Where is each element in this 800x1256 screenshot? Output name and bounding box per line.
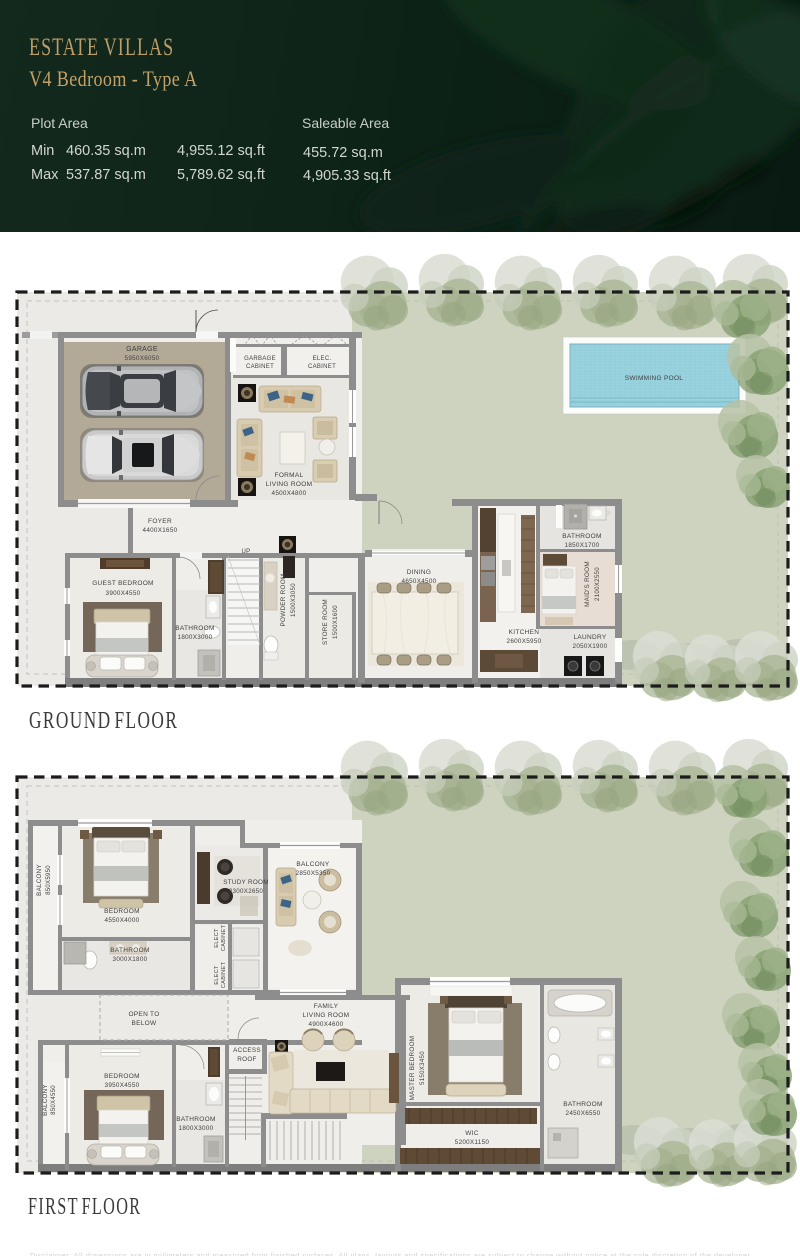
svg-text:1800X3000: 1800X3000 (179, 1125, 214, 1132)
svg-text:1500X1600: 1500X1600 (332, 605, 339, 639)
svg-text:5150X3450: 5150X3450 (419, 1051, 426, 1085)
svg-text:FORMAL: FORMAL (275, 472, 304, 479)
svg-text:POWDER ROOM: POWDER ROOM (280, 574, 287, 627)
svg-text:ELECT: ELECT (214, 928, 220, 948)
svg-text:BEDROOM: BEDROOM (104, 908, 140, 915)
svg-text:5950X6050: 5950X6050 (125, 355, 160, 362)
svg-text:ACCESS: ACCESS (233, 1047, 261, 1054)
svg-text:OPEN TO: OPEN TO (128, 1011, 159, 1018)
svg-text:BEDROOM: BEDROOM (104, 1073, 140, 1080)
svg-text:WIC: WIC (465, 1130, 479, 1137)
svg-text:BALCONY: BALCONY (296, 861, 330, 868)
svg-text:4550X4000: 4550X4000 (105, 917, 140, 924)
svg-text:BATHROOM: BATHROOM (110, 947, 149, 954)
svg-text:BATHROOM: BATHROOM (176, 1116, 215, 1123)
svg-text:BATHROOM: BATHROOM (563, 1101, 602, 1108)
svg-text:4900X4600: 4900X4600 (309, 1021, 344, 1028)
svg-text:2850X5350: 2850X5350 (296, 870, 331, 877)
svg-text:2100X2550: 2100X2550 (594, 567, 601, 601)
svg-text:ELECT: ELECT (214, 965, 220, 985)
svg-text:1800X3000: 1800X3000 (178, 634, 213, 641)
svg-text:2300X2650: 2300X2650 (229, 888, 264, 895)
svg-text:850X5950: 850X5950 (46, 865, 52, 895)
svg-text:3950X4550: 3950X4550 (105, 1082, 140, 1089)
svg-text:BATHROOM: BATHROOM (175, 625, 214, 632)
svg-text:850X4550: 850X4550 (51, 1085, 57, 1115)
svg-text:4400X1650: 4400X1650 (143, 527, 178, 534)
svg-text:ROOF: ROOF (237, 1056, 256, 1063)
svg-text:KITCHEN: KITCHEN (509, 629, 540, 636)
svg-text:2600X5950: 2600X5950 (507, 638, 542, 645)
svg-text:GUEST BEDROOM: GUEST BEDROOM (92, 580, 154, 587)
svg-text:CABINET: CABINET (221, 962, 227, 989)
svg-text:LIVING ROOM: LIVING ROOM (266, 481, 313, 488)
svg-text:GARAGE: GARAGE (126, 346, 158, 353)
svg-text:STUDY ROOM: STUDY ROOM (223, 879, 269, 886)
svg-text:BELOW: BELOW (132, 1020, 158, 1027)
svg-text:BALCONY: BALCONY (36, 864, 43, 896)
svg-text:3900X4550: 3900X4550 (106, 590, 141, 597)
svg-text:CABINET: CABINET (221, 925, 227, 952)
svg-text:FOYER: FOYER (148, 518, 172, 525)
svg-text:CABINET: CABINET (246, 364, 274, 370)
svg-text:1850X1700: 1850X1700 (565, 542, 600, 549)
svg-text:CABINET: CABINET (308, 364, 336, 370)
svg-text:LIVING ROOM: LIVING ROOM (303, 1012, 350, 1019)
svg-text:5200X1150: 5200X1150 (455, 1139, 490, 1146)
svg-text:1500X3050: 1500X3050 (290, 583, 297, 617)
svg-text:STORE ROOM: STORE ROOM (322, 599, 329, 645)
svg-text:BALCONY: BALCONY (42, 1084, 49, 1116)
svg-text:DINING: DINING (407, 569, 432, 576)
svg-text:LAUNDRY: LAUNDRY (573, 634, 606, 641)
svg-text:2450X6550: 2450X6550 (566, 1110, 601, 1117)
svg-text:UP: UP (242, 549, 251, 555)
svg-text:SWIMMING POOL: SWIMMING POOL (625, 375, 684, 382)
svg-text:MAID'S ROOM: MAID'S ROOM (584, 561, 591, 607)
svg-text:FAMILY: FAMILY (314, 1003, 339, 1010)
svg-text:GARBAGE: GARBAGE (244, 356, 276, 362)
svg-text:BATHROOM: BATHROOM (562, 533, 601, 540)
svg-text:MASTER BEDROOM: MASTER BEDROOM (409, 1036, 416, 1101)
svg-text:3000X1800: 3000X1800 (113, 956, 148, 963)
svg-text:4650X4500: 4650X4500 (402, 578, 437, 585)
svg-text:2050X1900: 2050X1900 (573, 643, 608, 650)
svg-text:ELEC.: ELEC. (313, 356, 332, 362)
svg-text:4500X4800: 4500X4800 (272, 490, 307, 497)
